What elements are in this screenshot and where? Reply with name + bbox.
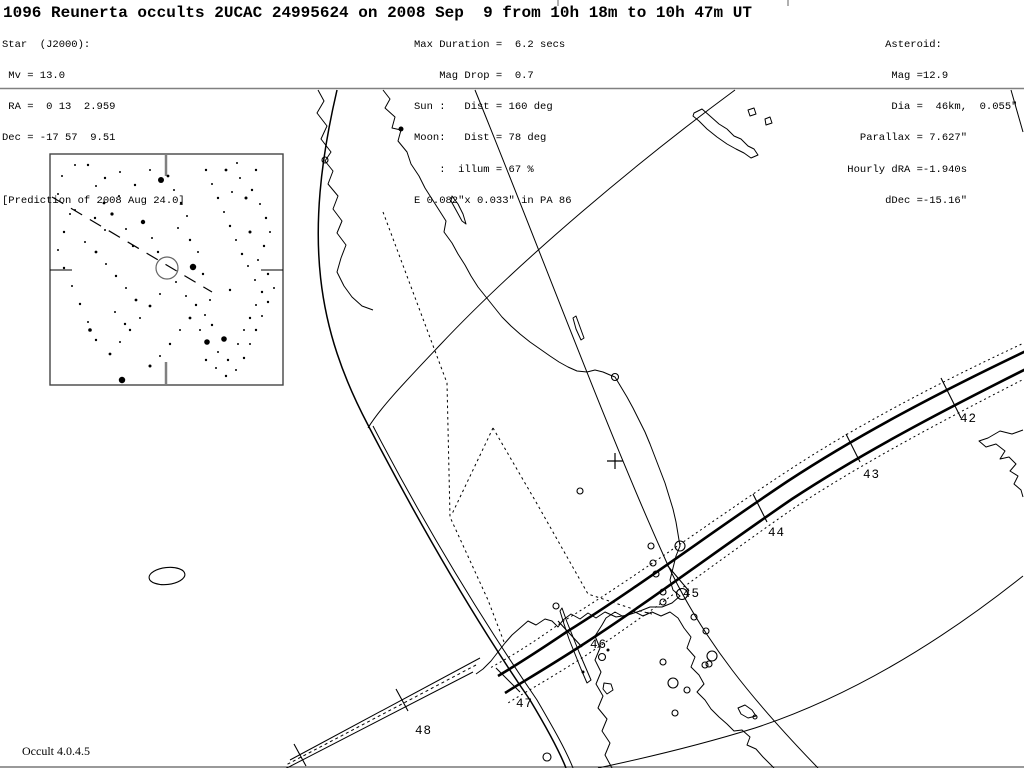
finder-chart-star (231, 191, 233, 193)
shadow-ellipse (148, 566, 186, 587)
finder-chart-star (227, 359, 229, 361)
limit-curve-west-twin (373, 426, 573, 768)
finder-chart-star (190, 264, 196, 270)
finder-chart-star (71, 285, 73, 287)
finder-chart-star (125, 228, 127, 230)
path-extension-thin-south (283, 672, 473, 768)
finder-chart-star (265, 217, 267, 219)
state-border-west (383, 212, 504, 642)
finder-chart-star (204, 339, 210, 345)
finder-chart-star (177, 227, 179, 229)
finder-chart-star (263, 245, 265, 247)
city-marker (577, 488, 583, 494)
time-tick-label: 46 (590, 638, 607, 652)
finder-chart-star (119, 341, 121, 343)
finder-chart-star (199, 329, 201, 331)
finder-chart-star (132, 245, 134, 247)
time-tick-label: 47 (516, 697, 533, 711)
path-limit-north-solid (498, 351, 1024, 676)
islet-ne-1 (748, 108, 756, 116)
finder-chart-star (229, 289, 231, 291)
finder-chart-star (245, 197, 248, 200)
time-tick-label: 43 (863, 468, 880, 482)
time-tick-label: 44 (768, 526, 785, 540)
finder-chart-star (175, 281, 177, 283)
finder-chart-star (257, 259, 259, 261)
asteroid-parallax-line: Parallax = 7.627" (841, 133, 1017, 143)
finder-chart-star (88, 328, 92, 332)
finder-chart-star (269, 231, 271, 233)
finder-chart-star (185, 295, 187, 297)
city-marker (660, 659, 666, 665)
finder-chart-star (217, 351, 219, 353)
app-version-label: Occult 4.0.4.5 (22, 744, 90, 759)
star-ra-line: RA = 0 13 2.959 (2, 102, 185, 112)
finder-chart-star (221, 336, 227, 342)
finder-chart-star (215, 367, 217, 369)
prediction-date-line: [Prediction of 2008 Aug 24.0] (2, 196, 185, 206)
finder-chart-star (124, 323, 126, 325)
finder-chart-star (109, 353, 112, 356)
star-mv-line: Mv = 13.0 (2, 71, 185, 81)
finder-chart-star (149, 365, 152, 368)
star-dec-line: Dec = -17 57 9.51 (2, 133, 185, 143)
finder-chart-star (243, 329, 245, 331)
finder-chart-star (87, 321, 89, 323)
finder-chart-star (225, 169, 228, 172)
city-marker (648, 543, 654, 549)
time-tick-mark (396, 689, 408, 711)
island-offshore-nsw (573, 316, 584, 340)
finder-chart-star (135, 299, 138, 302)
window-artifact-mark (787, 0, 789, 6)
state-border-murray-upper (452, 428, 493, 514)
finder-chart-star (186, 215, 188, 217)
finder-chart-star (104, 229, 106, 231)
finder-chart-star (251, 189, 253, 191)
city-marker (668, 678, 678, 688)
finder-chart-star (236, 162, 238, 164)
city-marker (660, 599, 666, 605)
finder-chart-star (151, 237, 153, 239)
finder-chart-star (63, 231, 65, 233)
finder-chart-star (189, 317, 192, 320)
event-info-block: Max Duration = 6.2 secs Mag Drop = 0.7 S… (414, 19, 572, 227)
finder-chart-star (159, 355, 161, 357)
map-dot (399, 127, 404, 132)
star-blank-line (2, 165, 185, 175)
finder-chart-star (189, 239, 191, 241)
mag-drop-line: Mag Drop = 0.7 (414, 71, 572, 81)
asteroid-info-block: Asteroid: Mag =12.9 Dia = 46km, 0.055" P… (841, 19, 1017, 227)
finder-chart-star (261, 315, 263, 317)
finder-chart-star (211, 183, 213, 185)
island-bass-strait-blob (603, 683, 613, 694)
finder-chart-star (273, 287, 275, 289)
finder-chart-star (254, 279, 256, 281)
city-marker (672, 710, 678, 716)
islet-ne-2 (765, 117, 772, 125)
path-uncertainty-south-dotted (508, 378, 1024, 703)
finder-chart-star (209, 299, 211, 301)
finder-chart-star (255, 169, 257, 171)
finder-chart-star (159, 293, 161, 295)
city-marker (650, 560, 656, 566)
finder-chart-star (139, 317, 141, 319)
finder-chart-star (211, 324, 213, 326)
finder-chart-star (249, 231, 252, 234)
asteroid-ddec-line: dDec =-15.16" (841, 196, 1017, 206)
city-marker (706, 661, 712, 667)
finder-chart-star (129, 329, 131, 331)
finder-chart-star (237, 343, 239, 345)
coastline-cape-york-west (317, 90, 373, 310)
map-dot (607, 649, 610, 652)
city-marker (599, 654, 606, 661)
finder-chart-star (225, 375, 227, 377)
finder-chart-star (223, 211, 225, 213)
asteroid-dia-line: Dia = 46km, 0.055" (841, 102, 1017, 112)
path-extension-center-dashed (286, 665, 476, 765)
finder-chart-star (84, 241, 86, 243)
finder-chart-star (247, 265, 249, 267)
city-marker (684, 687, 690, 693)
finder-chart-star (119, 377, 125, 383)
finder-chart-star (79, 303, 81, 305)
finder-chart-star (202, 273, 204, 275)
finder-chart-star (255, 304, 257, 306)
path-extension-thin-north (290, 658, 480, 760)
map-dot (582, 671, 585, 674)
finder-chart-star (125, 287, 127, 289)
star-info-block: Star (J2000): Mv = 13.0 RA = 0 13 2.959 … (2, 19, 185, 227)
finder-chart-star (149, 305, 152, 308)
finder-chart-star (57, 249, 59, 251)
finder-chart-star (259, 203, 261, 205)
finder-chart-star (197, 251, 199, 253)
finder-chart-star (229, 225, 231, 227)
finder-chart-star (179, 329, 181, 331)
moon-illum-line: : illum = 67 % (414, 165, 572, 175)
asteroid-header-line: Asteroid: (841, 40, 1017, 50)
asteroid-dra-line: Hourly dRA =-1.940s (841, 165, 1017, 175)
star-header-line: Star (J2000): (2, 40, 185, 50)
city-marker (322, 157, 328, 163)
finder-chart-star (235, 369, 237, 371)
finder-chart-star (217, 197, 219, 199)
finder-chart-star (169, 343, 171, 345)
finder-chart-star (195, 304, 197, 306)
finder-chart-star (239, 177, 241, 179)
sun-dist-line: Sun : Dist = 160 deg (414, 102, 572, 112)
path-limit-south-solid (505, 369, 1024, 693)
finder-chart-star (205, 169, 207, 171)
finder-chart-star (249, 317, 251, 319)
finder-chart-star (267, 273, 269, 275)
finder-chart-star (204, 314, 206, 316)
asteroid-mag-line: Mag =12.9 (841, 71, 1017, 81)
city-marker (553, 603, 559, 609)
finder-chart-star (235, 239, 237, 241)
state-border-nsw-vic (493, 428, 652, 614)
time-tick-label: 48 (415, 724, 432, 738)
finder-chart-star (105, 263, 107, 265)
city-marker (702, 662, 708, 668)
error-ellipse-line: E 0.082"x 0.033" in PA 86 (414, 196, 572, 206)
finder-chart-star (115, 275, 117, 277)
finder-chart-star (114, 311, 116, 313)
time-tick-label: 45 (683, 587, 700, 601)
moon-dist-line: Moon: Dist = 78 deg (414, 133, 572, 143)
finder-chart-star (95, 251, 98, 254)
max-duration-line: Max Duration = 6.2 secs (414, 40, 572, 50)
finder-chart-star (205, 359, 207, 361)
time-tick-mark (753, 494, 767, 522)
finder-chart-star (157, 251, 159, 253)
occultation-prediction-window: { "header": { "title": "1096 Reunerta oc… (0, 0, 1024, 768)
finder-chart-star (261, 291, 263, 293)
finder-chart-star (249, 343, 251, 345)
island-new-caledonia (693, 109, 758, 158)
finder-chart-star (267, 301, 269, 303)
finder-chart-star (255, 329, 257, 331)
finder-chart-star (95, 339, 97, 341)
finder-chart-star (63, 267, 65, 269)
time-tick-label: 42 (960, 412, 977, 426)
city-marker (543, 753, 551, 761)
finder-chart-star (243, 357, 245, 359)
city-marker (707, 651, 717, 661)
coastline-new-zealand-fragment (979, 430, 1023, 497)
finder-chart-star (241, 253, 243, 255)
